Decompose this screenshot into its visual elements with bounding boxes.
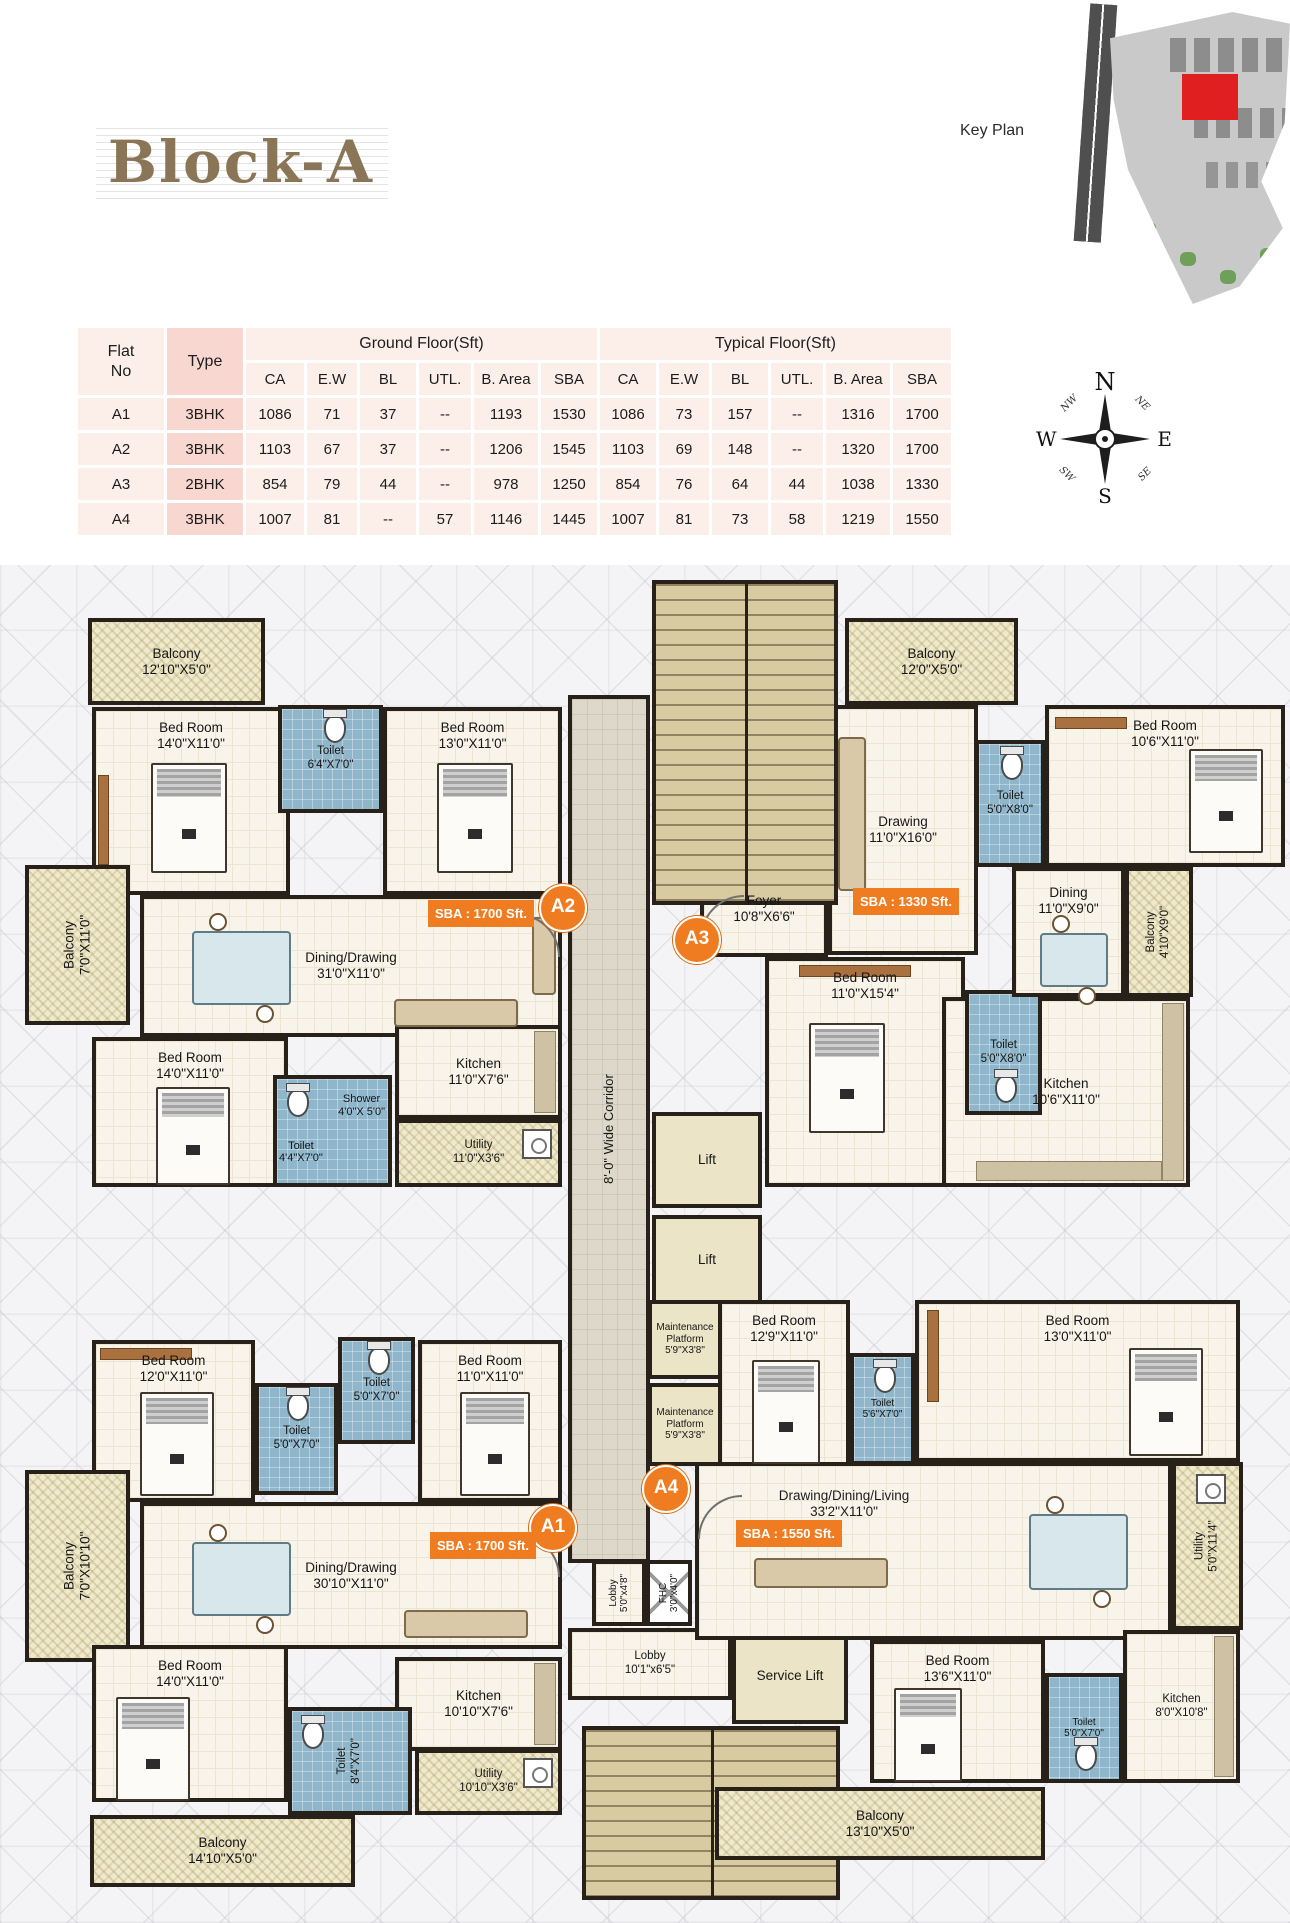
table-cell: 1700 bbox=[893, 398, 951, 430]
table-cell: 79 bbox=[307, 468, 357, 500]
sub-header: SBA bbox=[893, 363, 951, 395]
table-cell: 854 bbox=[246, 468, 304, 500]
compass-ne-label: NE bbox=[1132, 394, 1151, 413]
table-cell: 1038 bbox=[826, 468, 890, 500]
key-plan-estate bbox=[1110, 12, 1290, 304]
room-a2-bedroom-2: Bed Room13'0"X11'0" bbox=[383, 707, 562, 895]
table-cell: 81 bbox=[307, 503, 357, 535]
table-cell: 1250 bbox=[541, 468, 597, 500]
table-cell: 1007 bbox=[246, 503, 304, 535]
kitchen-counter bbox=[1162, 1003, 1184, 1181]
room-fhc: FHC3'0"x4'0" bbox=[646, 1560, 692, 1626]
room-a4-toilet-2: Toilet5'0"X7'0" bbox=[1045, 1673, 1123, 1783]
toilet-fixture bbox=[287, 1089, 309, 1117]
kitchen-counter bbox=[1214, 1636, 1234, 1777]
table-cell: 1550 bbox=[893, 503, 951, 535]
room-a2-toilet-2-shower: Shower4'0"X 5'0" Toilet4'4"X7'0" bbox=[273, 1075, 392, 1187]
shower-label: Shower4'0"X 5'0" bbox=[338, 1093, 385, 1118]
compass-needle-north bbox=[1099, 394, 1111, 432]
sub-header: SBA bbox=[541, 363, 597, 395]
compass-nw-label: NW bbox=[1059, 393, 1080, 414]
flat-badge-a4: A4 bbox=[642, 1465, 690, 1513]
washing-machine bbox=[1196, 1474, 1226, 1504]
table-cell: 1320 bbox=[826, 433, 890, 465]
room-a2-balcony-top: Balcony12'10"X5'0" bbox=[88, 618, 265, 705]
stair-divider bbox=[711, 1730, 714, 1896]
toilet-fixture bbox=[995, 1075, 1017, 1103]
bed-furniture bbox=[116, 1697, 190, 1801]
flat-badge-a2: A2 bbox=[539, 884, 587, 932]
room-a3-bedroom-1: Bed Room10'6"X11'0" bbox=[1045, 705, 1285, 867]
table-cell: 67 bbox=[307, 433, 357, 465]
room-a1-toilet-3: Toilet8'4"X7'0" bbox=[288, 1707, 412, 1815]
washing-machine bbox=[522, 1129, 552, 1159]
room-a3-balcony-right: Balcony4'10"X9'0" bbox=[1125, 867, 1193, 997]
bed-furniture bbox=[1189, 749, 1263, 853]
dining-table-furniture bbox=[192, 1542, 291, 1616]
sub-header: UTL. bbox=[419, 363, 471, 395]
table-cell: 1530 bbox=[541, 398, 597, 430]
compass-south-label: S bbox=[1098, 484, 1112, 508]
sba-badge-a3: SBA : 1330 Sft. bbox=[853, 888, 959, 915]
table-cell: 44 bbox=[771, 468, 823, 500]
compass-sw-label: SW bbox=[1057, 465, 1077, 485]
compass-north-label: N bbox=[1095, 368, 1116, 396]
key-plan-green bbox=[1260, 248, 1276, 262]
room-a1-toilet-1: Toilet5'0"X7'0" bbox=[255, 1383, 338, 1495]
key-plan-green bbox=[1180, 252, 1196, 266]
table-cell: 73 bbox=[712, 503, 768, 535]
table-cell: 1086 bbox=[246, 398, 304, 430]
room-a3-balcony-top: Balcony12'0"X5'0" bbox=[845, 618, 1018, 705]
table-cell: 148 bbox=[712, 433, 768, 465]
room-a1-balcony-bottom: Balcony14'10"X5'0" bbox=[90, 1815, 355, 1887]
room-a1-kitchen: Kitchen10'10"X7'6" bbox=[395, 1657, 562, 1751]
table-cell: 1103 bbox=[246, 433, 304, 465]
table-cell: 978 bbox=[474, 468, 538, 500]
room-a4-living: Drawing/Dining/Living33'2"X11'0" bbox=[695, 1462, 1172, 1640]
sub-header: UTL. bbox=[771, 363, 823, 395]
sba-badge-a2: SBA : 1700 Sft. bbox=[428, 900, 534, 927]
room-a2-kitchen: Kitchen11'0"X7'6" bbox=[395, 1025, 562, 1119]
group-header-typical-floor: Typical Floor(Sft) bbox=[600, 328, 951, 360]
table-cell: 1330 bbox=[893, 468, 951, 500]
bed-furniture bbox=[156, 1087, 230, 1185]
room-a1-balcony-left: Balcony7'0"X10'10" bbox=[25, 1470, 130, 1662]
compass-east-label: E bbox=[1157, 427, 1172, 451]
table-cell: 37 bbox=[360, 433, 416, 465]
room-a4-kitchen: Kitchen8'0"X10'8" bbox=[1123, 1630, 1240, 1783]
table-cell: 1316 bbox=[826, 398, 890, 430]
wardrobe-furniture bbox=[100, 1348, 192, 1360]
table-cell: 854 bbox=[600, 468, 656, 500]
room-a3-drawing: Drawing11'0"X16'0" bbox=[828, 705, 978, 955]
room-lift-2: Lift bbox=[652, 1215, 762, 1305]
compass-needle-east bbox=[1112, 433, 1150, 445]
table-cell: 1193 bbox=[474, 398, 538, 430]
floor-plan: Balcony12'10"X5'0" Bed Room14'0"X11'0" T… bbox=[0, 565, 1290, 1923]
sofa-furniture bbox=[394, 999, 518, 1027]
area-table: FlatNo Type Ground Floor(Sft) Typical Fl… bbox=[78, 328, 951, 535]
sofa-furniture bbox=[754, 1558, 888, 1588]
flat-badge-a1: A1 bbox=[529, 1504, 577, 1552]
stair-divider bbox=[745, 584, 748, 901]
table-cell: -- bbox=[419, 398, 471, 430]
room-a1-dining-drawing: Dining/Drawing30'10"X11'0" bbox=[140, 1502, 562, 1649]
table-cell: -- bbox=[419, 433, 471, 465]
key-plan-label: Key Plan bbox=[960, 122, 1024, 140]
room-a3-dining: Dining11'0"X9'0" bbox=[1012, 867, 1125, 997]
room-a1-utility: Utility10'10"X3'6" bbox=[415, 1749, 562, 1815]
compass-needle-south bbox=[1099, 446, 1111, 484]
room-a1-bedroom-3: Bed Room14'0"X11'0" bbox=[92, 1645, 288, 1802]
sub-header: E.W bbox=[307, 363, 357, 395]
bed-furniture bbox=[140, 1392, 214, 1496]
wardrobe-furniture bbox=[98, 775, 109, 865]
sub-header: CA bbox=[246, 363, 304, 395]
toilet-fixture bbox=[1075, 1743, 1097, 1771]
flat-no-cell: A1 bbox=[78, 398, 164, 430]
sub-header: E.W bbox=[659, 363, 709, 395]
sub-header: BL bbox=[360, 363, 416, 395]
col-header-type: Type bbox=[167, 328, 243, 395]
table-cell: 73 bbox=[659, 398, 709, 430]
type-cell: 3BHK bbox=[167, 503, 243, 535]
table-cell: 1545 bbox=[541, 433, 597, 465]
key-plan-green bbox=[1140, 222, 1156, 236]
desk-furniture bbox=[1055, 717, 1127, 729]
table-cell: 1700 bbox=[893, 433, 951, 465]
flat-badge-a3: A3 bbox=[673, 916, 721, 964]
room-lobby-small: Lobby5'0"x4'8" bbox=[592, 1560, 646, 1626]
room-lift-1: Lift bbox=[652, 1112, 762, 1208]
table-cell: -- bbox=[771, 433, 823, 465]
bed-furniture bbox=[1129, 1348, 1203, 1456]
table-cell: -- bbox=[419, 468, 471, 500]
block-title: Block-A bbox=[108, 118, 378, 210]
bed-furniture bbox=[460, 1392, 530, 1496]
key-plan-green bbox=[1220, 270, 1236, 284]
room-service-lift: Service Lift bbox=[732, 1628, 848, 1724]
table-cell: 64 bbox=[712, 468, 768, 500]
type-cell: 3BHK bbox=[167, 398, 243, 430]
sofa-furniture bbox=[838, 737, 866, 891]
table-cell: -- bbox=[360, 503, 416, 535]
kitchen-counter bbox=[534, 1031, 556, 1113]
dining-table-furniture bbox=[192, 931, 291, 1005]
table-cell: 1007 bbox=[600, 503, 656, 535]
room-a4-toilet-1: Toilet5'6"X7'0" bbox=[850, 1353, 915, 1465]
room-a1-toilet-2: Toilet5'0"X7'0" bbox=[338, 1337, 415, 1444]
table-cell: 1103 bbox=[600, 433, 656, 465]
table-cell: 37 bbox=[360, 398, 416, 430]
washing-machine bbox=[523, 1758, 553, 1788]
room-a4-balcony-bottom: Balcony13'10"X5'0" bbox=[715, 1787, 1045, 1860]
room-a3-toilet-2: Toilet5'0"X8'0" bbox=[965, 990, 1042, 1115]
sub-header: CA bbox=[600, 363, 656, 395]
kitchen-counter bbox=[534, 1663, 556, 1745]
corridor: 8'-0" Wide Corridor bbox=[568, 695, 650, 1563]
sba-badge-a1: SBA : 1700 Sft. bbox=[430, 1532, 536, 1559]
kitchen-counter bbox=[976, 1161, 1162, 1181]
table-cell: 1206 bbox=[474, 433, 538, 465]
room-a2-balcony-left: Balcony7'0"X11'0" bbox=[25, 865, 130, 1025]
compass-hub bbox=[1094, 428, 1116, 450]
toilet-fixture bbox=[302, 1721, 324, 1749]
type-cell: 3BHK bbox=[167, 433, 243, 465]
room-a4-bedroom-2: Bed Room13'0"X11'0" bbox=[915, 1300, 1240, 1462]
flat-no-cell: A3 bbox=[78, 468, 164, 500]
room-maintenance-platform-2: Maintenance Platform5'9"X3'8" bbox=[648, 1383, 722, 1466]
toilet-label: Toilet4'4"X7'0" bbox=[279, 1140, 323, 1165]
key-plan-map bbox=[1058, 4, 1290, 306]
toilet-fixture bbox=[324, 715, 346, 743]
table-cell: 1086 bbox=[600, 398, 656, 430]
room-a2-bedroom-3: Bed Room14'0"X11'0" bbox=[92, 1037, 288, 1187]
compass-needle-west bbox=[1060, 433, 1098, 445]
sub-header: BL bbox=[712, 363, 768, 395]
bed-furniture bbox=[151, 763, 227, 873]
toilet-fixture bbox=[874, 1365, 896, 1393]
compass-se-label: SE bbox=[1136, 466, 1154, 484]
type-cell: 2BHK bbox=[167, 468, 243, 500]
page-title: Block-A bbox=[108, 118, 378, 206]
stairwell-top bbox=[652, 580, 838, 905]
table-cell: 44 bbox=[360, 468, 416, 500]
wardrobe-furniture bbox=[927, 1310, 939, 1402]
sub-header: B. Area bbox=[474, 363, 538, 395]
flat-no-cell: A4 bbox=[78, 503, 164, 535]
dining-table-furniture bbox=[1040, 933, 1108, 987]
toilet-fixture bbox=[368, 1347, 390, 1375]
bed-furniture bbox=[894, 1688, 962, 1782]
toilet-fixture bbox=[1001, 752, 1023, 780]
table-cell: 76 bbox=[659, 468, 709, 500]
key-plan-buildings bbox=[1170, 38, 1290, 72]
table-cell: 1219 bbox=[826, 503, 890, 535]
room-a1-bedroom-2: Bed Room11'0"X11'0" bbox=[418, 1340, 562, 1502]
sofa-furniture bbox=[404, 1610, 528, 1638]
table-cell: 157 bbox=[712, 398, 768, 430]
compass-rose: N S E W NW NE SE SW bbox=[1038, 372, 1172, 506]
wardrobe-furniture bbox=[799, 965, 911, 977]
group-header-ground-floor: Ground Floor(Sft) bbox=[246, 328, 597, 360]
key-plan-highlighted-block bbox=[1182, 74, 1238, 120]
col-header-flat-no: FlatNo bbox=[78, 328, 164, 395]
table-cell: 1445 bbox=[541, 503, 597, 535]
toilet-fixture bbox=[287, 1393, 309, 1421]
key-plan-buildings bbox=[1206, 162, 1290, 188]
room-a2-toilet-1: Toilet6'4"X7'0" bbox=[278, 705, 383, 813]
room-a3-toilet-1: Toilet5'0"X8'0" bbox=[975, 740, 1045, 867]
table-cell: 69 bbox=[659, 433, 709, 465]
bed-furniture bbox=[809, 1023, 885, 1133]
bed-furniture bbox=[437, 763, 513, 873]
dining-table-furniture bbox=[1029, 1514, 1128, 1590]
bed-furniture bbox=[752, 1360, 820, 1464]
table-cell: 71 bbox=[307, 398, 357, 430]
table-cell: 57 bbox=[419, 503, 471, 535]
room-a4-bedroom-3: Bed Room13'6"X11'0" bbox=[870, 1640, 1045, 1783]
table-cell: 81 bbox=[659, 503, 709, 535]
table-cell: 1146 bbox=[474, 503, 538, 535]
room-a3-bedroom-2: Bed Room11'0"X15'4" bbox=[765, 957, 965, 1187]
compass-west-label: W bbox=[1036, 427, 1057, 451]
room-a4-utility: Utility5'0"X11'4" bbox=[1172, 1462, 1243, 1630]
sub-header: B. Area bbox=[826, 363, 890, 395]
table-cell: -- bbox=[771, 398, 823, 430]
sba-badge-a4: SBA : 1550 Sft. bbox=[736, 1520, 842, 1547]
room-a2-utility: Utility11'0"X3'6" bbox=[395, 1119, 562, 1187]
table-cell: 58 bbox=[771, 503, 823, 535]
flat-no-cell: A2 bbox=[78, 433, 164, 465]
room-maintenance-platform-1: Maintenance Platform5'9"X3'8" bbox=[648, 1300, 722, 1379]
